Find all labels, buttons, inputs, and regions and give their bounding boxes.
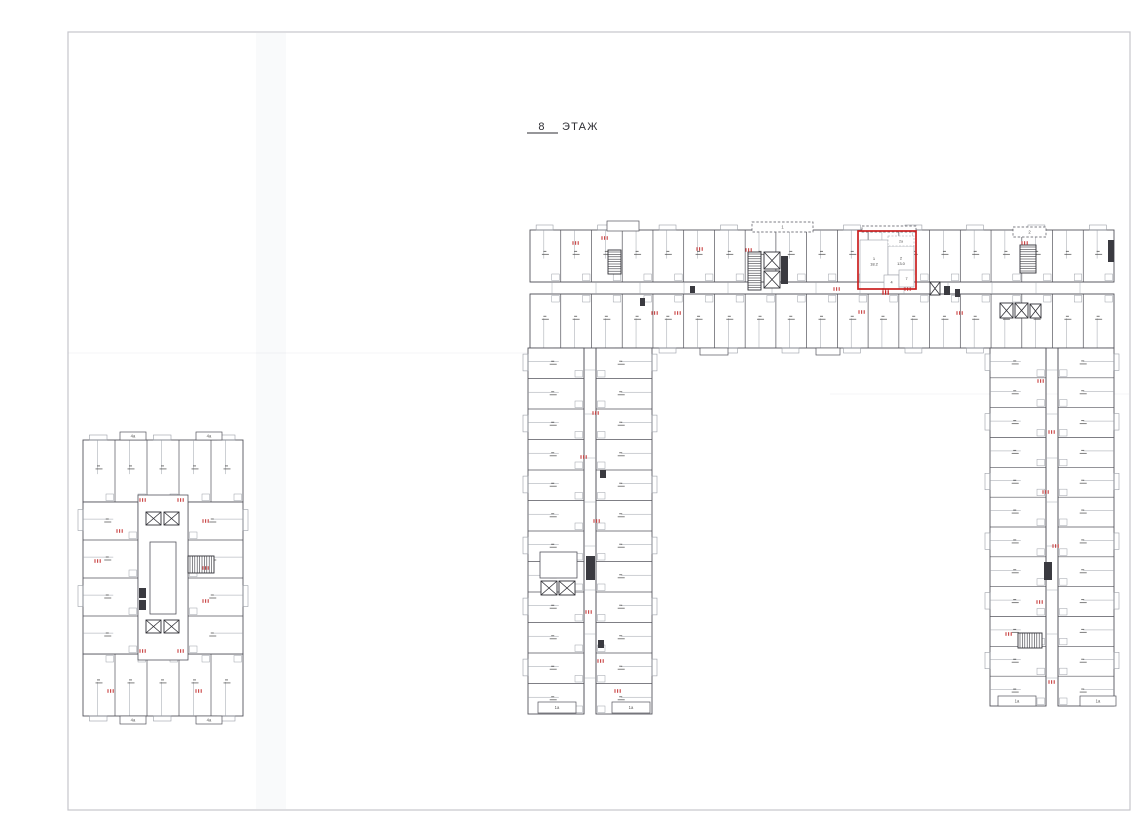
solid-shaft [600, 470, 606, 478]
floor-plan-drawing: 121a1a1a1a4a4a4a4a118.2213.0472a 8 ЭТАЖ [0, 0, 1138, 820]
solid-shaft [690, 286, 695, 293]
protrusion-outline [607, 221, 639, 231]
solid-shaft [640, 298, 645, 306]
highlight-room-area: 13.0 [897, 261, 906, 266]
solid-shaft [598, 640, 604, 648]
solid-shaft [1044, 562, 1052, 580]
apartment-row [83, 654, 243, 716]
protrusion-label: 1a [629, 705, 634, 710]
core-room-outline [150, 542, 176, 614]
highlight-small-room-label: 7 [905, 277, 907, 281]
protrusion-label: 4a [131, 434, 136, 439]
solid-shaft [955, 289, 960, 297]
plan-geometry: 121a1a1a1a4a4a4a4a118.2213.0472a [68, 32, 1130, 810]
protrusion-label: 4a [207, 718, 212, 723]
solid-shaft [139, 600, 146, 610]
protrusion-label: 1a [555, 705, 560, 710]
solid-shaft [781, 256, 788, 284]
protrusion-label: 4a [207, 434, 212, 439]
staircase-icon [188, 556, 214, 573]
staircase-icon [1018, 633, 1042, 648]
protrusion-outline [816, 348, 840, 355]
floor-title-label: ЭТАЖ [562, 121, 599, 133]
core-room-outline [540, 552, 577, 578]
solid-shaft [1108, 240, 1114, 262]
staircase-icon [608, 250, 621, 274]
floor-title: 8 ЭТАЖ [527, 121, 599, 133]
highlight-small-room-label: 4 [890, 281, 892, 285]
protrusion-label: 1a [1096, 699, 1101, 704]
highlight-balcony-label: 2a [899, 240, 903, 244]
floor-number: 8 [538, 121, 545, 133]
highlight-room-area: 18.2 [870, 262, 879, 267]
protrusion-label: 1a [1015, 699, 1020, 704]
protrusion-outline [700, 348, 728, 355]
solid-shaft [944, 286, 950, 295]
scanned-floor-plan-sheet: 121a1a1a1a4a4a4a4a118.2213.0472a 8 ЭТАЖ [0, 0, 1138, 820]
paper-crease-band [256, 33, 286, 809]
apartment-row [83, 440, 243, 502]
solid-shaft [586, 556, 595, 580]
protrusion-label: 4a [131, 718, 136, 723]
solid-shaft [139, 588, 146, 598]
